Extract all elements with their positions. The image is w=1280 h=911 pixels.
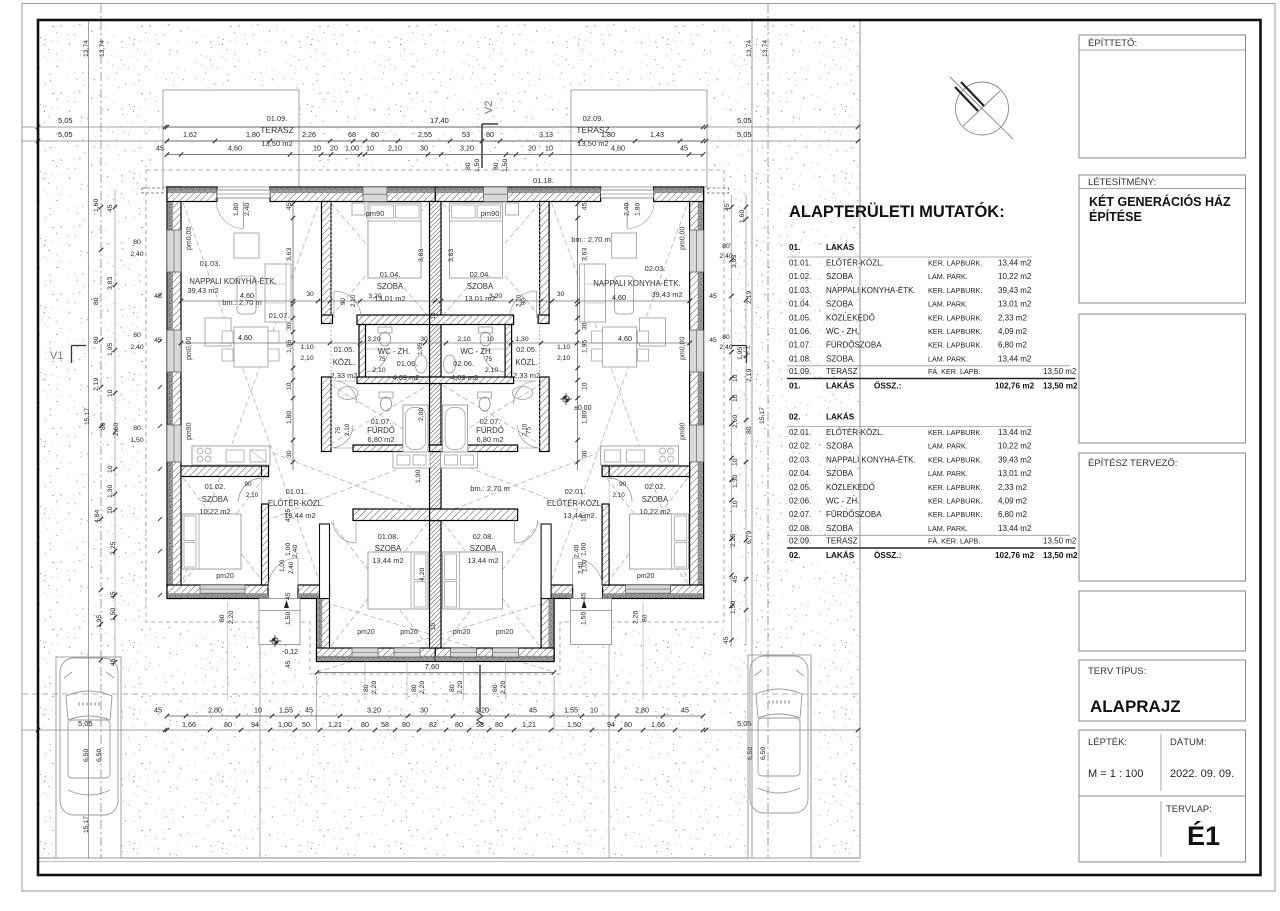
svg-text:FÁ. KER. LAPB.: FÁ. KER. LAPB. (928, 537, 980, 546)
svg-text:80: 80 (93, 336, 100, 344)
svg-text:80: 80 (495, 720, 503, 729)
svg-text:45: 45 (107, 204, 114, 212)
svg-text:2,40: 2,40 (244, 203, 251, 216)
svg-text:1,95: 1,95 (737, 347, 744, 360)
svg-text:80: 80 (722, 334, 730, 341)
svg-text:02.09.: 02.09. (583, 114, 604, 123)
svg-text:80: 80 (449, 684, 456, 692)
svg-text:pm20: pm20 (357, 629, 375, 636)
svg-text:90: 90 (340, 297, 347, 305)
svg-text:13,50 m2: 13,50 m2 (577, 139, 608, 148)
svg-text:5,05: 5,05 (737, 116, 752, 125)
svg-text:13,50 m2: 13,50 m2 (1043, 537, 1077, 546)
svg-text:13,50 m2: 13,50 m2 (1043, 382, 1078, 391)
svg-text:3,20: 3,20 (367, 336, 380, 343)
svg-text:10,22 m2: 10,22 m2 (199, 507, 230, 516)
svg-text:30: 30 (286, 322, 293, 330)
svg-text:FÜRDŐ: FÜRDŐ (476, 426, 504, 435)
svg-text:bm.: 2,70 m: bm.: 2,70 m (470, 484, 510, 493)
svg-text:2,40: 2,40 (624, 203, 631, 216)
svg-text:80: 80 (100, 422, 107, 430)
svg-text:2,20: 2,20 (419, 681, 426, 694)
svg-text:SZOBA: SZOBA (826, 300, 854, 309)
svg-text:01.01.: 01.01. (286, 487, 307, 496)
svg-text:2,10: 2,10 (350, 294, 357, 307)
svg-text:KÖZLEKEDŐ: KÖZLEKEDŐ (826, 483, 875, 492)
svg-text:10: 10 (732, 500, 739, 508)
svg-text:30: 30 (582, 322, 589, 330)
svg-text:80: 80 (371, 130, 379, 139)
svg-text:ALAPTERÜLETI MUTATÓK:: ALAPTERÜLETI MUTATÓK: (789, 202, 1005, 221)
svg-text:FÜRDŐSZOBA: FÜRDŐSZOBA (826, 510, 882, 519)
svg-text:6,80 m2: 6,80 m2 (367, 435, 394, 444)
svg-text:80: 80 (455, 720, 463, 729)
svg-text:02.03.: 02.03. (789, 455, 811, 464)
svg-text:80: 80 (624, 720, 632, 729)
svg-text:ELŐTÉR-KÖZL.: ELŐTÉR-KÖZL. (826, 259, 884, 268)
svg-text:02.05.: 02.05. (789, 483, 811, 492)
svg-text:1,43: 1,43 (650, 130, 664, 139)
svg-text:2,20: 2,20 (633, 611, 640, 624)
svg-text:2,10: 2,10 (485, 367, 498, 374)
svg-text:80: 80 (219, 614, 226, 622)
svg-text:WC - ZH.: WC - ZH. (460, 347, 492, 356)
svg-text:1,66: 1,66 (182, 720, 196, 729)
svg-text:6,80 m2: 6,80 m2 (998, 510, 1027, 519)
svg-text:pm20: pm20 (216, 573, 234, 580)
svg-text:ÉPÍTÉSZ TERVEZŐ:: ÉPÍTÉSZ TERVEZŐ: (1088, 458, 1177, 469)
svg-text:WC - ZH.: WC - ZH. (378, 347, 410, 356)
svg-text:KÖZLEKEDŐ: KÖZLEKEDŐ (826, 313, 875, 322)
svg-text:LAM. PARK.: LAM. PARK. (928, 524, 968, 533)
svg-text:1,80: 1,80 (286, 411, 293, 424)
svg-text:3,63: 3,63 (582, 248, 589, 261)
svg-text:2,20: 2,20 (371, 681, 378, 694)
svg-text:1,30: 1,30 (515, 336, 528, 343)
svg-text:3,20: 3,20 (475, 706, 489, 715)
svg-text:ELŐTÉR-KÖZL.: ELŐTÉR-KÖZL. (268, 499, 324, 508)
svg-text:30: 30 (420, 144, 428, 153)
svg-text:KER. LAPBURK.: KER. LAPBURK. (928, 286, 982, 295)
svg-text:10: 10 (732, 458, 739, 466)
svg-text:É1: É1 (1187, 820, 1220, 851)
svg-text:13,74: 13,74 (746, 40, 753, 57)
svg-text:02.08.: 02.08. (789, 524, 811, 533)
svg-text:01.18.: 01.18. (533, 176, 554, 185)
svg-text:3,83: 3,83 (418, 249, 425, 262)
svg-text:13,01 m2: 13,01 m2 (998, 469, 1032, 478)
svg-text:80: 80 (402, 720, 410, 729)
svg-text:6,80 m2: 6,80 m2 (998, 341, 1027, 350)
svg-text:75: 75 (485, 356, 493, 363)
svg-text:KER. LAPBURK.: KER. LAPBURK. (928, 341, 982, 350)
svg-text:4,60: 4,60 (618, 334, 632, 343)
svg-text:80: 80 (722, 243, 730, 250)
svg-text:01.06.: 01.06. (789, 327, 811, 336)
svg-text:1,50: 1,50 (285, 612, 292, 625)
svg-text:17,40: 17,40 (430, 116, 449, 125)
svg-text:5,05: 5,05 (58, 116, 73, 125)
svg-text:pm20: pm20 (496, 629, 514, 636)
svg-text:2,25: 2,25 (730, 534, 737, 547)
svg-text:2,33 m2: 2,33 m2 (513, 371, 540, 380)
svg-text:KER. LAPBURK.: KER. LAPBURK. (928, 259, 982, 268)
svg-text:30: 30 (557, 291, 565, 298)
svg-text:FÜRDŐ: FÜRDŐ (367, 426, 395, 435)
svg-text:SZOBA: SZOBA (375, 544, 402, 553)
svg-text:80: 80 (492, 684, 499, 692)
svg-text:NAPPALI KONYHA-ÉTK.: NAPPALI KONYHA-ÉTK. (826, 455, 916, 464)
svg-text:pm90: pm90 (366, 209, 385, 218)
svg-text:2,33 m2: 2,33 m2 (998, 313, 1027, 322)
svg-text:10: 10 (582, 382, 589, 390)
svg-text:LAKÁS: LAKÁS (826, 550, 855, 560)
svg-text:2,33 m2: 2,33 m2 (998, 483, 1027, 492)
svg-text:TERASZ: TERASZ (826, 367, 858, 376)
svg-text:13,44 m2: 13,44 m2 (998, 354, 1032, 363)
svg-text:10: 10 (107, 506, 114, 514)
svg-text:02.01.: 02.01. (565, 487, 586, 496)
svg-text:SZOBA: SZOBA (642, 495, 669, 504)
svg-text:1,80: 1,80 (582, 411, 589, 424)
svg-text:15,17: 15,17 (84, 408, 91, 425)
svg-text:13,44 m2: 13,44 m2 (372, 556, 403, 565)
svg-text:1,00: 1,00 (278, 720, 292, 729)
svg-text:01.09.: 01.09. (789, 367, 811, 376)
svg-text:LAM. PARK.: LAM. PARK. (928, 442, 968, 451)
svg-text:1,50: 1,50 (110, 608, 117, 621)
svg-text:TERVLAP:: TERVLAP: (1166, 804, 1212, 815)
svg-text:6,50: 6,50 (96, 749, 103, 762)
svg-text:02.05.: 02.05. (516, 345, 537, 354)
svg-text:1,50: 1,50 (130, 437, 143, 444)
svg-text:1,55: 1,55 (279, 706, 293, 715)
svg-text:02.06.: 02.06. (789, 497, 811, 506)
svg-text:SZOBA: SZOBA (826, 524, 854, 533)
svg-text:01.02.: 01.02. (205, 482, 226, 491)
svg-text:7,60: 7,60 (425, 662, 440, 671)
svg-text:ÉPÍTÉSE: ÉPÍTÉSE (1089, 209, 1142, 224)
svg-text:01.03.: 01.03. (789, 286, 811, 295)
svg-text:50: 50 (302, 720, 310, 729)
svg-text:4,60: 4,60 (228, 144, 242, 153)
svg-text:45: 45 (305, 706, 313, 715)
svg-text:4,60: 4,60 (612, 293, 626, 302)
svg-text:30: 30 (582, 450, 589, 458)
svg-text:01.06.: 01.06. (397, 359, 418, 368)
svg-text:2,10: 2,10 (557, 355, 570, 362)
svg-text:02.07.: 02.07. (480, 417, 501, 426)
svg-text:V1: V1 (50, 350, 63, 362)
svg-text:80: 80 (133, 425, 141, 432)
svg-text:2,10: 2,10 (344, 423, 351, 436)
svg-text:80: 80 (493, 162, 500, 170)
svg-text:4,09 m2: 4,09 m2 (998, 497, 1027, 506)
svg-text:02.: 02. (789, 551, 800, 560)
svg-text:2,60: 2,60 (732, 415, 739, 428)
svg-text:V2: V2 (483, 101, 495, 114)
svg-text:6,50: 6,50 (760, 747, 767, 760)
svg-text:1,50: 1,50 (567, 720, 581, 729)
svg-text:10: 10 (254, 706, 262, 715)
svg-text:30: 30 (286, 450, 293, 458)
svg-text:75: 75 (378, 356, 386, 363)
svg-text:1,95: 1,95 (96, 615, 103, 628)
svg-text:15,17: 15,17 (83, 816, 90, 833)
svg-text:58: 58 (476, 720, 484, 729)
svg-text:45: 45 (529, 706, 537, 715)
svg-text:2,40: 2,40 (292, 545, 299, 558)
svg-text:1,95: 1,95 (286, 340, 293, 353)
svg-text:4,84: 4,84 (94, 510, 101, 523)
svg-text:ELŐTÉR-KÖZL.: ELŐTÉR-KÖZL. (547, 499, 603, 508)
svg-text:1,90: 1,90 (415, 470, 422, 483)
svg-text:FÁ. KER. LAPB.: FÁ. KER. LAPB. (928, 367, 980, 376)
svg-text:39,43 m2: 39,43 m2 (998, 286, 1032, 295)
svg-text:90: 90 (619, 481, 627, 488)
svg-text:5,05: 5,05 (58, 130, 73, 139)
svg-text:2,19: 2,19 (746, 369, 753, 382)
svg-text:13,44 m2: 13,44 m2 (998, 524, 1032, 533)
svg-text:10,22 m2: 10,22 m2 (639, 507, 670, 516)
svg-text:10: 10 (581, 514, 588, 522)
svg-text:4,60: 4,60 (240, 291, 254, 300)
svg-text:01.01.: 01.01. (789, 259, 811, 268)
svg-text:10,22 m2: 10,22 m2 (998, 442, 1032, 451)
svg-text:1,60: 1,60 (93, 199, 100, 212)
svg-text:KER. LAPBURK.: KER. LAPBURK. (928, 510, 982, 519)
svg-text:30: 30 (420, 706, 428, 715)
svg-text:4,09 m2: 4,09 m2 (451, 373, 478, 382)
svg-text:01.07.: 01.07. (789, 341, 811, 350)
svg-text:LAM. PARK.: LAM. PARK. (928, 469, 968, 478)
svg-text:KER. LAPBURK.: KER. LAPBURK. (928, 327, 982, 336)
svg-text:ÖSSZ.:: ÖSSZ.: (874, 381, 901, 391)
svg-text:94: 94 (251, 720, 259, 729)
svg-text:1,00: 1,00 (285, 543, 292, 556)
svg-text:2,40: 2,40 (130, 251, 143, 258)
svg-text:1,66: 1,66 (651, 720, 665, 729)
svg-text:13,44 m2: 13,44 m2 (563, 511, 594, 520)
svg-text:1,60: 1,60 (739, 210, 746, 223)
svg-text:45: 45 (681, 706, 689, 715)
svg-text:1,95: 1,95 (582, 340, 589, 353)
svg-text:pm20: pm20 (400, 629, 418, 636)
svg-text:3,83: 3,83 (107, 277, 114, 290)
svg-text:15,17: 15,17 (759, 407, 766, 424)
svg-text:30: 30 (306, 291, 314, 298)
svg-text:13,50 m2: 13,50 m2 (261, 139, 292, 148)
svg-text:pm90: pm90 (680, 422, 687, 440)
svg-text:2,20: 2,20 (457, 681, 464, 694)
svg-text:2,80: 2,80 (208, 706, 222, 715)
svg-text:13,50 m2: 13,50 m2 (1043, 367, 1077, 376)
svg-text:1,30: 1,30 (107, 485, 114, 498)
svg-text:45: 45 (723, 636, 730, 644)
svg-text:10: 10 (107, 465, 114, 473)
svg-text:pm90: pm90 (481, 209, 500, 218)
svg-text:80: 80 (133, 332, 141, 339)
svg-text:1,10: 1,10 (300, 344, 313, 351)
svg-text:10: 10 (545, 144, 553, 153)
svg-text:6,79: 6,79 (746, 531, 753, 544)
svg-text:SZOBA: SZOBA (826, 272, 854, 281)
svg-text:pm20: pm20 (637, 573, 655, 580)
svg-text:01.02.: 01.02. (789, 272, 811, 281)
svg-text:DÁTUM:: DÁTUM: (1170, 737, 1206, 748)
svg-text:01.07.: 01.07. (371, 417, 392, 426)
svg-text:4,60: 4,60 (238, 333, 252, 342)
svg-text:NAPPALI KONYHA-ÉTK.: NAPPALI KONYHA-ÉTK. (826, 286, 916, 295)
svg-text:KER. LAPBURK.: KER. LAPBURK. (928, 455, 982, 464)
svg-text:SZOBA: SZOBA (202, 495, 229, 504)
svg-text:4,25: 4,25 (285, 509, 292, 522)
svg-text:pm0,00: pm0,00 (680, 227, 687, 250)
svg-text:2,10: 2,10 (522, 423, 529, 436)
svg-text:13,74: 13,74 (99, 40, 106, 57)
svg-text:2,10: 2,10 (516, 294, 523, 307)
svg-text:01.: 01. (789, 243, 800, 252)
svg-text:01.09.: 01.09. (267, 114, 288, 123)
svg-text:02.04.: 02.04. (470, 270, 491, 279)
svg-text:KER. LAPBURK.: KER. LAPBURK. (928, 428, 982, 437)
svg-text:1,80: 1,80 (246, 130, 260, 139)
svg-text:2,20: 2,20 (228, 611, 235, 624)
svg-text:10: 10 (286, 382, 293, 390)
svg-text:02.02.: 02.02. (645, 482, 666, 491)
svg-text:4,09 m2: 4,09 m2 (998, 327, 1027, 336)
svg-text:ÖSSZ.:: ÖSSZ.: (874, 550, 901, 560)
svg-text:39,43 m2: 39,43 m2 (998, 455, 1032, 464)
svg-text:-0,12: -0,12 (282, 649, 298, 656)
svg-text:M = 1 : 100: M = 1 : 100 (1088, 768, 1143, 780)
svg-text:2,10: 2,10 (372, 367, 385, 374)
svg-text:5,05: 5,05 (737, 130, 752, 139)
svg-text:4,20: 4,20 (419, 568, 426, 581)
svg-text:KER. LAPBURK.: KER. LAPBURK. (928, 313, 982, 322)
svg-text:pm0,00: pm0,00 (186, 337, 193, 360)
svg-text:13,50 m2: 13,50 m2 (1043, 551, 1078, 560)
svg-text:01.04.: 01.04. (789, 300, 811, 309)
svg-text:1,80: 1,80 (635, 203, 642, 216)
svg-text:13,01 m2: 13,01 m2 (464, 294, 495, 303)
svg-text:1,50: 1,50 (502, 159, 509, 172)
svg-text:KÉT GENERÁCIÓS HÁZ: KÉT GENERÁCIÓS HÁZ (1089, 194, 1231, 209)
svg-text:3,63: 3,63 (286, 248, 293, 261)
svg-text:13,01 m2: 13,01 m2 (374, 294, 405, 303)
svg-text:2,26: 2,26 (302, 130, 316, 139)
svg-text:LAM. PARK.: LAM. PARK. (928, 272, 968, 281)
svg-text:2,10: 2,10 (246, 492, 259, 499)
svg-text:45: 45 (724, 203, 731, 211)
svg-text:2,40: 2,40 (288, 561, 295, 574)
svg-text:4,09 m2: 4,09 m2 (392, 373, 419, 382)
svg-text:10: 10 (590, 706, 598, 715)
svg-text:1,50: 1,50 (474, 159, 481, 172)
svg-text:102,76 m2: 102,76 m2 (995, 382, 1035, 391)
svg-text:2022. 09. 09.: 2022. 09. 09. (1170, 768, 1234, 780)
svg-text:SZOBA: SZOBA (377, 282, 404, 291)
svg-text:1,00: 1,00 (345, 144, 359, 153)
svg-text:LAKÁS: LAKÁS (826, 242, 855, 252)
svg-text:5,05: 5,05 (737, 719, 752, 728)
svg-text:80: 80 (361, 720, 369, 729)
svg-text:KÖZL.: KÖZL. (333, 358, 356, 367)
svg-text:80: 80 (133, 239, 141, 246)
svg-text:39,43 m2: 39,43 m2 (651, 290, 682, 299)
svg-text:ÉPÍTTETŐ:: ÉPÍTTETŐ: (1088, 38, 1137, 49)
svg-text:45: 45 (154, 706, 162, 715)
svg-text:02.03.: 02.03. (645, 264, 666, 273)
svg-text:2,40: 2,40 (719, 344, 732, 351)
svg-text:KÖZL.: KÖZL. (515, 358, 538, 367)
svg-text:20: 20 (528, 144, 536, 153)
svg-text:45: 45 (732, 575, 739, 583)
svg-text:SZOBA: SZOBA (826, 442, 854, 451)
svg-text:1,00: 1,00 (279, 559, 286, 572)
svg-text:10: 10 (107, 389, 114, 397)
svg-text:2,55: 2,55 (418, 130, 432, 139)
svg-text:pm90: pm90 (186, 422, 193, 440)
svg-text:SZOBA: SZOBA (467, 282, 494, 291)
svg-text:pm0,00: pm0,00 (186, 227, 193, 250)
svg-text:1,21: 1,21 (522, 720, 536, 729)
svg-text:01.03.: 01.03. (200, 259, 221, 268)
svg-text:75: 75 (335, 426, 342, 434)
svg-text:2,10: 2,10 (612, 492, 625, 499)
svg-text:2,40: 2,40 (719, 253, 732, 260)
svg-text:3,83: 3,83 (448, 249, 455, 262)
svg-text:02.02.: 02.02. (789, 442, 811, 451)
svg-text:1,00: 1,00 (581, 543, 588, 556)
svg-text:2,40: 2,40 (578, 561, 585, 574)
svg-text:02.09.: 02.09. (789, 537, 811, 546)
svg-text:02.01.: 02.01. (789, 428, 811, 437)
svg-text:2,40: 2,40 (574, 545, 581, 558)
svg-text:13,74: 13,74 (762, 40, 769, 57)
svg-text:102,76 m2: 102,76 m2 (995, 551, 1035, 560)
svg-text:45: 45 (709, 337, 717, 344)
svg-text:80: 80 (642, 614, 649, 622)
svg-text:1,50: 1,50 (730, 601, 737, 614)
svg-text:20: 20 (330, 144, 338, 153)
svg-text:30: 30 (420, 336, 428, 343)
svg-text:1,30: 1,30 (732, 475, 739, 488)
svg-text:pm20: pm20 (453, 629, 471, 636)
svg-text:2,25: 2,25 (110, 542, 117, 555)
svg-text:80: 80 (486, 130, 494, 139)
svg-text:45: 45 (286, 202, 293, 210)
svg-text:45: 45 (582, 202, 589, 210)
svg-text:1,95: 1,95 (107, 343, 114, 356)
svg-text:SZOBA: SZOBA (826, 354, 854, 363)
svg-text:01.08.: 01.08. (378, 532, 399, 541)
svg-text:13,44 m2: 13,44 m2 (998, 428, 1032, 437)
svg-text:02.04.: 02.04. (789, 469, 811, 478)
svg-text:LÉTESÍTMÉNY:: LÉTESÍTMÉNY: (1088, 177, 1156, 188)
svg-text:1,10: 1,10 (557, 344, 570, 351)
svg-text:2,10: 2,10 (300, 355, 313, 362)
svg-text:10: 10 (430, 622, 437, 630)
svg-text:90: 90 (244, 481, 252, 488)
svg-text:LAKÁS: LAKÁS (826, 412, 855, 422)
svg-text:2,80: 2,80 (635, 706, 649, 715)
svg-text:1,50: 1,50 (581, 612, 588, 625)
svg-text:45: 45 (110, 591, 117, 599)
svg-text:58: 58 (381, 720, 389, 729)
svg-text:1,62: 1,62 (183, 130, 197, 139)
svg-text:80: 80 (93, 297, 100, 305)
